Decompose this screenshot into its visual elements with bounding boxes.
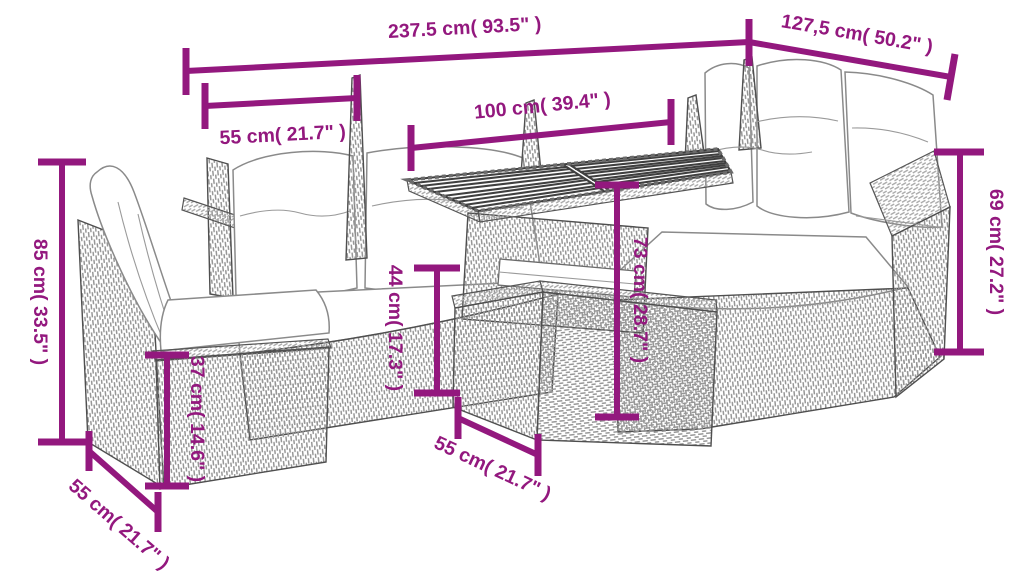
sofa-back-post-left bbox=[207, 158, 233, 298]
dim-label-sofa-back-height: 69 cm( 27.2" ) bbox=[985, 189, 1007, 315]
dim-label-table-height: 73 cm( 28.7" ) bbox=[629, 237, 651, 363]
back-cushion bbox=[233, 151, 357, 298]
dim-label-stool-height: 37 cm( 14.6" ) bbox=[186, 356, 208, 482]
table-base-right-face bbox=[537, 292, 717, 446]
dimension-diagram: 237.5 cm( 93.5" ) 127,5 cm( 50.2" ) 55 c… bbox=[0, 0, 1020, 581]
dim-label-seat-height: 44 cm( 17.3" ) bbox=[384, 265, 406, 391]
back-cushion bbox=[757, 59, 849, 217]
dim-label-chair-back-height: 85 cm( 33.5" ) bbox=[29, 239, 51, 365]
